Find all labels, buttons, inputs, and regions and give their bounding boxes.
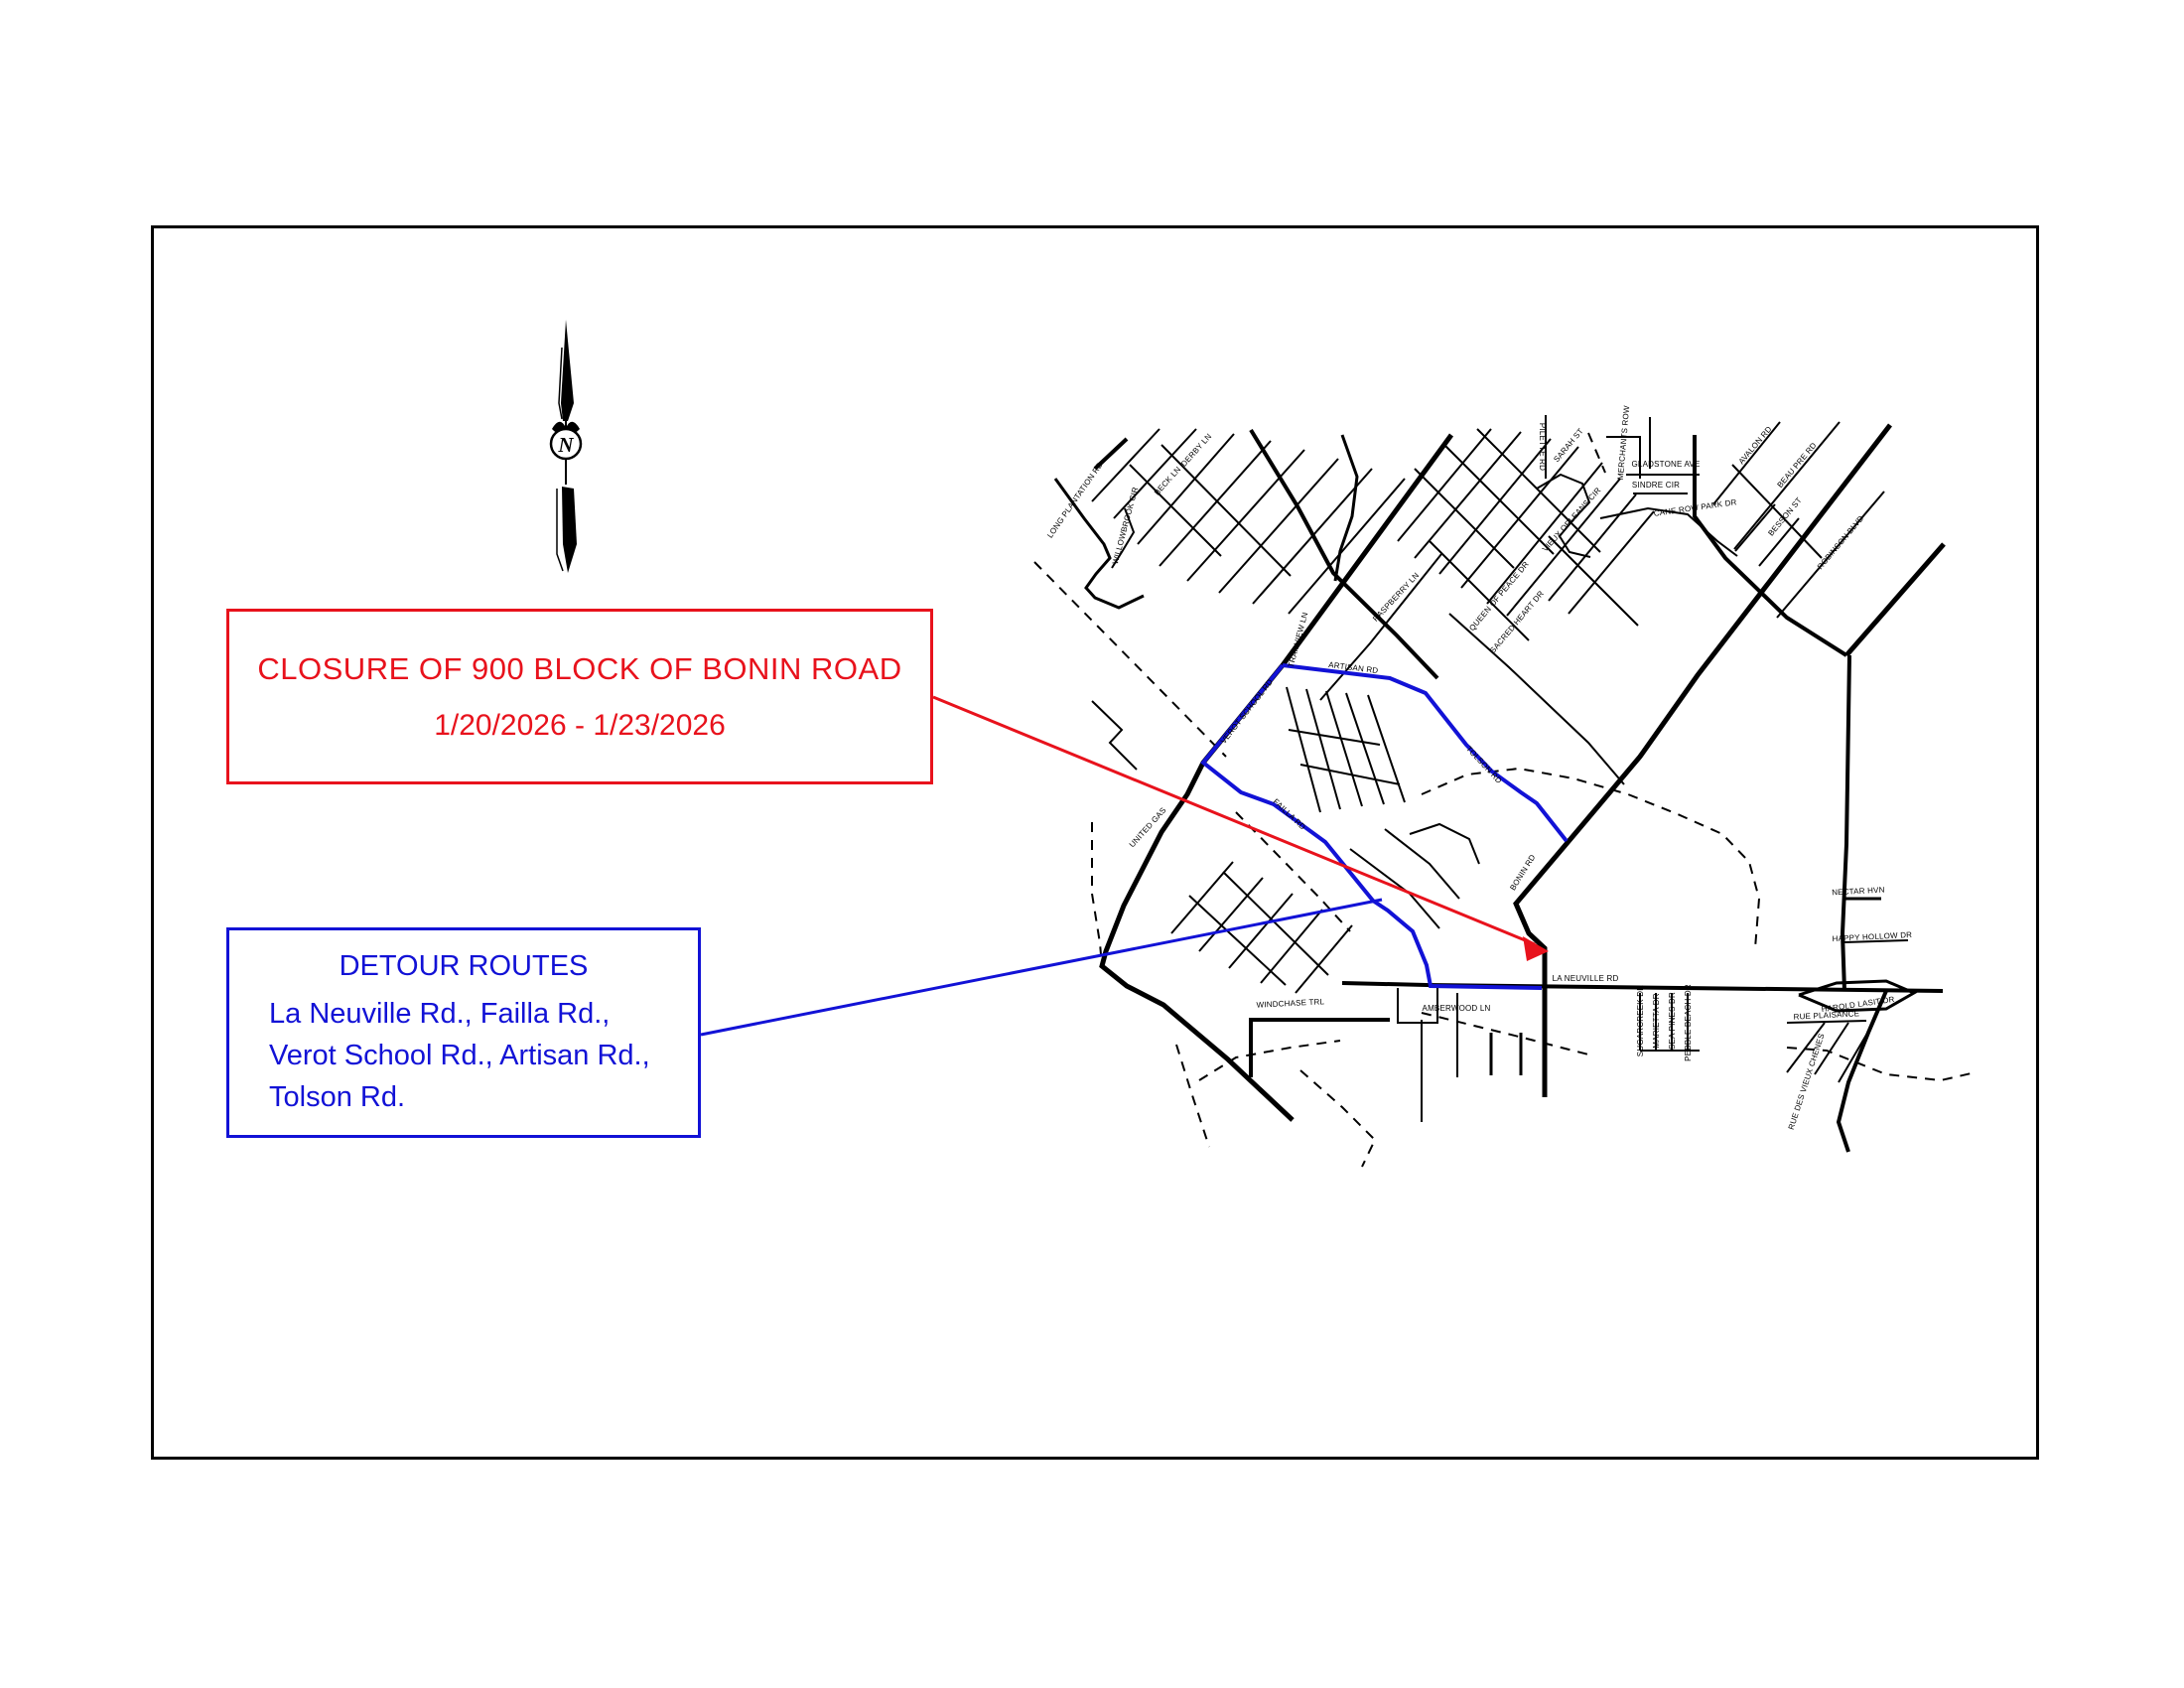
detour-route-line: Verot School Rd., Artisan Rd., [269,1035,698,1076]
north-arrow-letter: N [557,433,574,457]
street-label: BECK LN [1153,465,1183,497]
road-line [1306,689,1340,809]
street-label: AVALON RD [1737,425,1774,467]
street-label: NECTAR HVN [1832,886,1885,898]
road-line [1734,422,1840,549]
road-line [1287,687,1320,812]
north-arrow-blade-bottom [562,487,577,573]
boundary-dashed-line [1176,1045,1209,1147]
street-label: WILLOWBROOK CIR [1111,486,1140,565]
street-label: MARIETTA DR [1652,993,1661,1048]
street-label: LONG PLANTATION RD [1045,461,1105,540]
roads-layer [1034,415,1976,1167]
road-line [1092,701,1137,770]
street-label: AMBERWOOD LN [1423,1004,1491,1013]
north-arrow-outline-bottom [557,489,563,571]
detour-title: DETOUR ROUTES [269,950,658,983]
street-label: MERCHANTS ROW [1616,405,1632,481]
road-line [1189,896,1286,985]
road-line [1223,872,1328,975]
road-line [1251,1020,1390,1077]
boundary-dashed-line [1199,1041,1340,1080]
detour-route-layer [1203,665,1567,988]
road-line [1346,693,1384,804]
street-label: VEROT SCHOOL RD [1219,677,1275,746]
road-line [1549,536,1638,626]
street-label: VIEUX ORLEANS CIR [1541,486,1603,553]
street-label: SEA PINES DR [1668,992,1677,1050]
street-label: FAILLA RD [1272,797,1307,832]
detour-route-line: Tolson Rd. [269,1076,698,1118]
boundary-dashed-line [1422,769,1759,948]
boundary-dashed-line [1034,562,1226,757]
north-arrow-outline-top [559,348,562,419]
street-labels-layer: LA NEUVILLE RDBONIN RDVEROT SCHOOL RDFAI… [1045,405,1912,1131]
road-line [1507,479,1620,616]
street-label: SUGARCREEK DR [1636,985,1645,1056]
boundary-dashed-line [1092,822,1102,966]
street-label: GLADSTONE AVE [1632,460,1701,469]
closure-annotation: CLOSURE OF 900 BLOCK OF BONIN ROAD 1/20/… [226,609,933,784]
street-label: WINDCHASE TRL [1256,997,1324,1010]
road-line [1138,434,1234,544]
street-label: SINDRE CIR [1632,481,1680,490]
road-line [1102,435,1451,1120]
map-canvas: N LA NEUVILLE RDBONIN RDVEROT SCHOOL RDF… [0,0,2184,1688]
road-line [1444,445,1554,554]
road-line [1846,544,1944,655]
detour-annotation: DETOUR ROUTES La Neuville Rd., Failla Rd… [226,927,701,1138]
road-line [1251,430,1437,678]
detour-leader-line [701,900,1382,1035]
north-arrow-blade-top [561,320,574,421]
north-arrow: N [551,320,581,573]
road-line [1326,691,1362,806]
street-label: LA NEUVILLE RD [1553,974,1619,983]
street-label: TOLSON RD [1464,745,1504,785]
street-label: ROBINSON BLVD [1816,514,1865,572]
road-line [1695,435,1846,655]
road-line [1415,469,1514,568]
road-line [1410,824,1479,864]
detour-route-line: La Neuville Rd., Failla Rd., [269,993,698,1035]
street-label: RASPBERRY LN [1371,571,1421,624]
boundary-dashed-line [1422,1013,1588,1055]
boundary-dashed-line [1588,433,1605,473]
closure-dates: 1/20/2026 - 1/23/2026 [229,709,930,743]
road-line [1368,695,1405,802]
street-label: PEBBLE BEACH DR [1684,984,1693,1061]
street-label: TRAILVIEW LN [1287,611,1310,668]
boundary-dashed-line [1300,1070,1375,1167]
street-label: BEAU PRE RD [1775,441,1818,490]
street-label: PILETTE RD [1538,423,1547,471]
road-line [1439,439,1551,574]
closure-title: CLOSURE OF 900 BLOCK OF BONIN ROAD [229,651,930,687]
